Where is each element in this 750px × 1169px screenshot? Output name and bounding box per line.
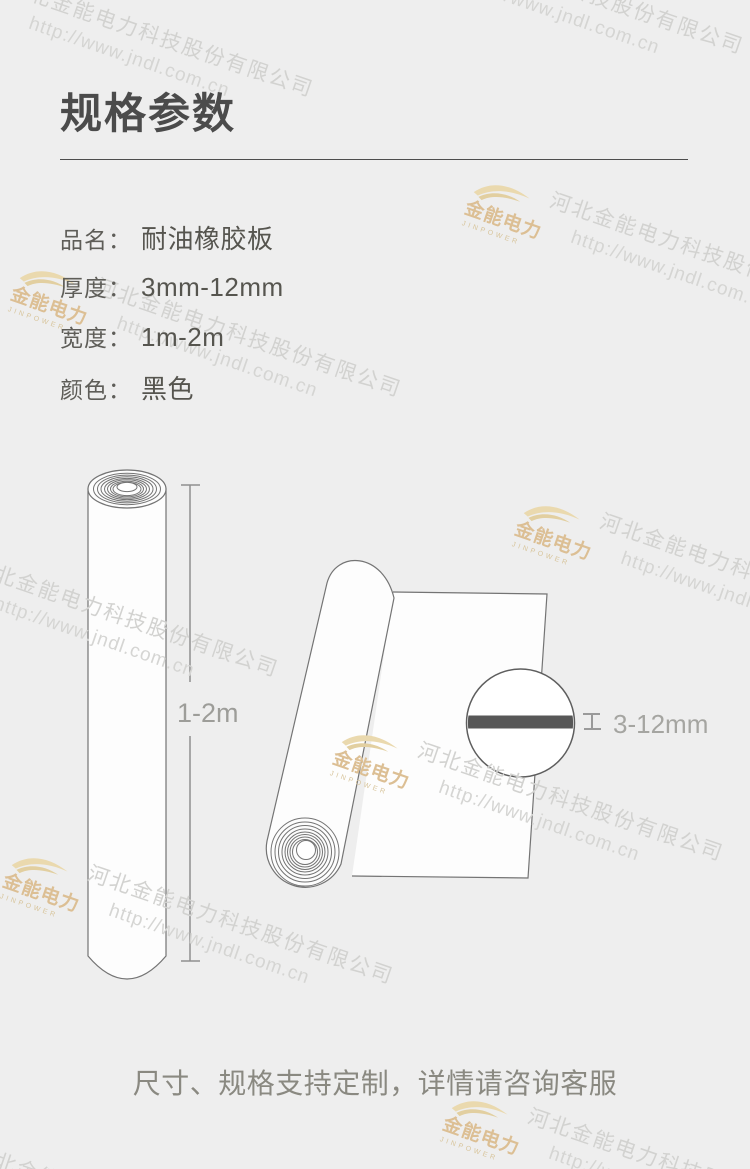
spec-label: 宽度： <box>60 319 132 353</box>
spec-sheet-page: 1-2m <box>0 0 750 1169</box>
spec-list: 品名： 耐油橡胶板 厚度： 3mm-12mm 宽度： 1m-2m 颜色： 黑色 <box>60 219 284 419</box>
spec-row-thickness: 厚度： 3mm-12mm <box>60 269 284 319</box>
spec-label: 厚度： <box>60 269 132 303</box>
footer-note: 尺寸、规格支持定制，详情请咨询客服 <box>0 1062 750 1102</box>
spec-label: 品名： <box>60 221 132 255</box>
spec-row-product-name: 品名： 耐油橡胶板 <box>60 219 284 269</box>
spec-value: 黑色 <box>141 369 194 406</box>
page-title: 规格参数 <box>60 80 236 141</box>
spec-row-color: 颜色： 黑色 <box>60 369 284 419</box>
spec-value: 3mm-12mm <box>141 272 284 303</box>
spec-value: 耐油橡胶板 <box>141 219 274 256</box>
spec-label: 颜色： <box>60 371 132 405</box>
spec-row-width: 宽度： 1m-2m <box>60 319 284 369</box>
spec-value: 1m-2m <box>141 322 224 353</box>
title-divider <box>60 159 688 160</box>
content-layer: 规格参数 品名： 耐油橡胶板 厚度： 3mm-12mm 宽度： 1m-2m 颜色… <box>0 0 750 1169</box>
